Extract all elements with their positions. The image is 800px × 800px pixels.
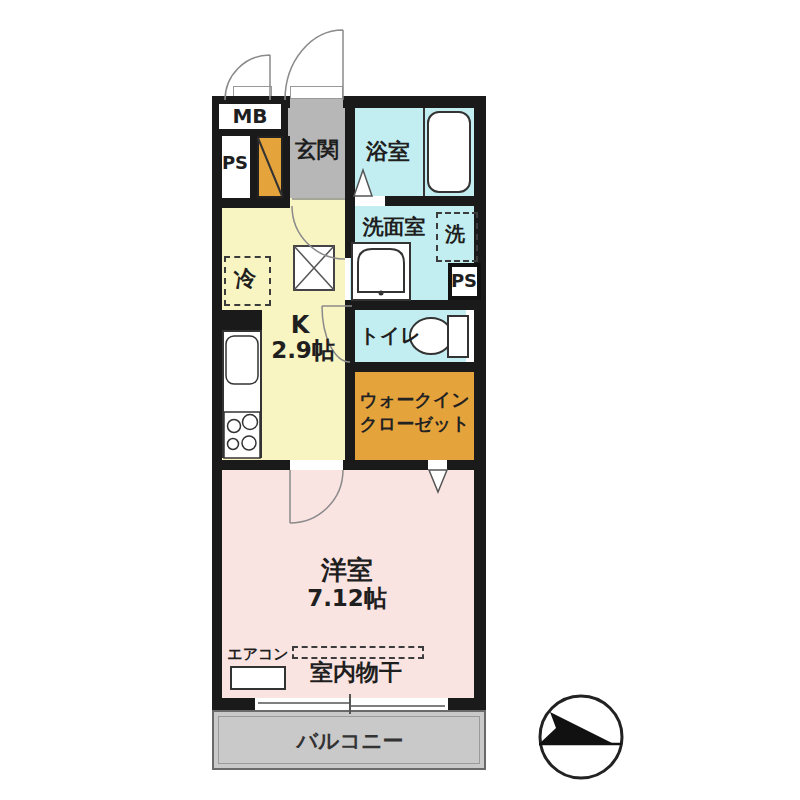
floorplan: MB PS 玄関 浴室 洗面室 洗 PS 冷 K 2.9帖 トイレ ウォークイン… — [0, 0, 800, 800]
window-glass-lines — [258, 694, 445, 714]
aircon-label: エアコン — [226, 646, 290, 663]
drying-label: 室内物干 — [292, 660, 420, 685]
wic-door-mark — [429, 470, 447, 492]
mb-door-arc — [225, 55, 270, 100]
balcony-label: バルコニー — [282, 730, 418, 753]
ps-top-label: PS — [220, 153, 250, 173]
genkan-label: 玄関 — [288, 138, 346, 162]
north-arrow-icon — [539, 696, 622, 778]
shoe-cabinet-diagonal — [258, 138, 282, 196]
mb-label: MB — [219, 105, 281, 127]
ps-side-label: PS — [449, 271, 479, 291]
washbasin — [352, 243, 410, 300]
entrance-door-arc — [285, 30, 343, 100]
bedroom-label: 洋室 — [307, 556, 387, 585]
bathtub — [428, 112, 470, 192]
toilet-label: トイレ — [358, 324, 422, 346]
bathroom-label: 浴室 — [360, 140, 416, 164]
bedroom-door-arc — [290, 470, 343, 523]
hatch-box — [294, 246, 334, 290]
washer-space-label: 洗 — [440, 223, 470, 245]
kitchen-label: K — [270, 312, 330, 338]
washroom-label: 洗面室 — [356, 216, 432, 239]
bedroom-size: 7.12帖 — [297, 586, 397, 611]
stove — [224, 412, 260, 458]
wic-label-line2: クローゼット — [357, 414, 472, 434]
bathroom-folding-door — [354, 170, 372, 196]
wic-label-line1: ウォークイン — [357, 390, 472, 410]
kitchen-size: 2.9帖 — [253, 338, 353, 363]
